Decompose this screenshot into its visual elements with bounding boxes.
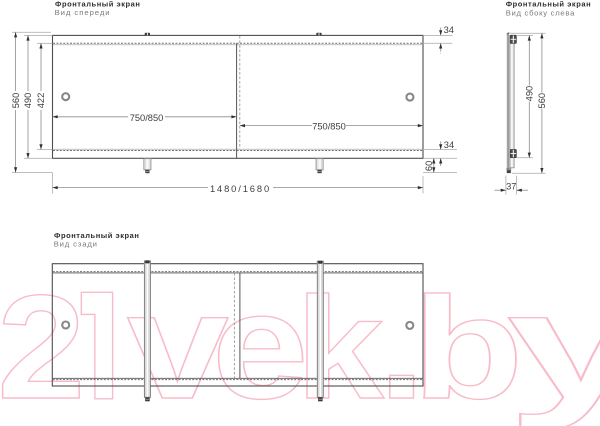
svg-text:37: 37 [506,182,516,192]
svg-text:560: 560 [11,93,21,109]
svg-text:60: 60 [424,161,434,171]
svg-text:Вид сзади: Вид сзади [54,240,98,249]
svg-text:Вид спереди: Вид спереди [55,8,111,17]
svg-text:422: 422 [36,93,46,109]
svg-text:560: 560 [537,93,547,109]
svg-text:750/850: 750/850 [130,113,164,123]
svg-text:750/850: 750/850 [312,122,346,132]
svg-text:Вид сбоку слева: Вид сбоку слева [506,8,575,17]
svg-text:34: 34 [444,140,454,150]
svg-text:Фронтальный экран: Фронтальный экран [506,0,591,9]
svg-text:1480/1680: 1480/1680 [210,184,271,194]
svg-text:490: 490 [23,93,33,109]
svg-text:34: 34 [444,25,454,35]
svg-text:y: y [507,261,600,426]
svg-text:490: 490 [524,86,534,102]
